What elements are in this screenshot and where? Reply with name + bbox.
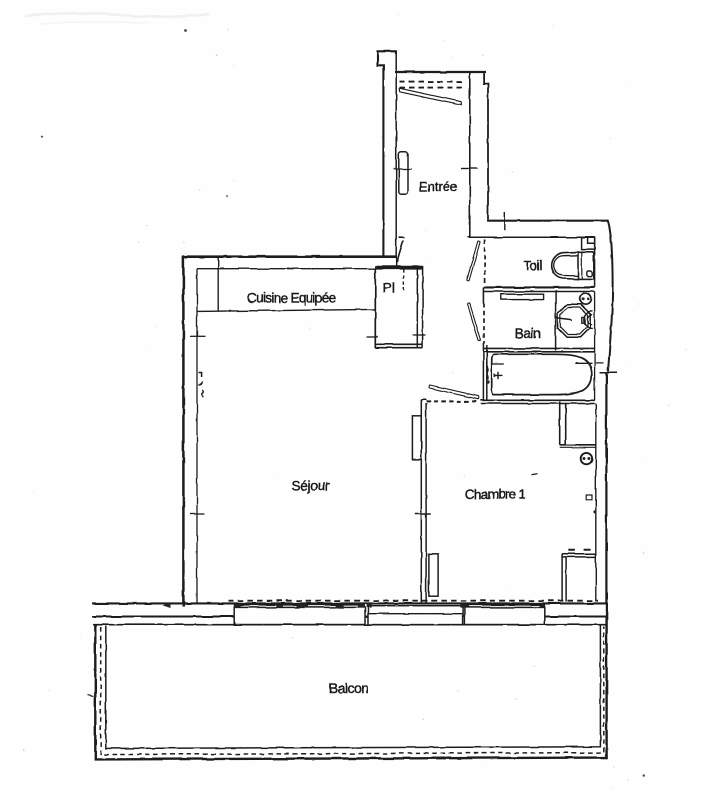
svg-text:Bain: Bain bbox=[515, 326, 541, 341]
svg-text:Toil: Toil bbox=[524, 258, 543, 273]
svg-text:Entrée: Entrée bbox=[419, 179, 457, 194]
svg-text:Chambre 1: Chambre 1 bbox=[465, 487, 526, 502]
svg-text:Balcon: Balcon bbox=[329, 681, 369, 697]
svg-text:Cuisine Equipée: Cuisine Equipée bbox=[247, 291, 336, 306]
svg-text:Pl: Pl bbox=[383, 279, 395, 295]
svg-text:Séjour: Séjour bbox=[292, 478, 330, 493]
